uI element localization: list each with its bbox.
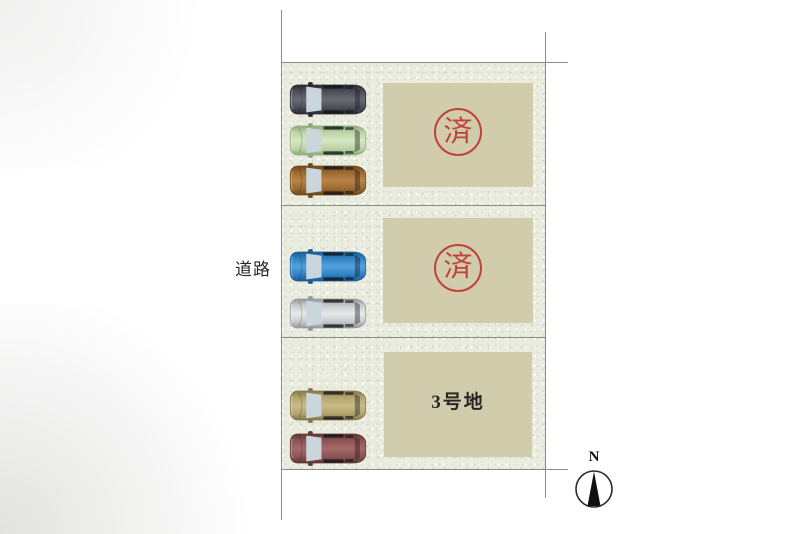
- compass-rose-icon: [572, 467, 616, 511]
- bottom-boundary-line: [282, 469, 568, 470]
- bottom-left-shade: [0, 304, 310, 534]
- lot-divider-2-line: [282, 337, 545, 338]
- dark-gray-car: [288, 81, 368, 118]
- compass: N: [566, 449, 622, 511]
- right-boundary-line: [545, 32, 546, 498]
- blue-car: [288, 248, 368, 285]
- lot-2-pad: 済: [383, 218, 533, 323]
- green-car: [288, 122, 368, 159]
- lot-1-pad: 済: [383, 83, 533, 187]
- site-plan-canvas: 道路 済済3号地: [0, 0, 801, 534]
- top-boundary-line: [282, 62, 568, 63]
- compass-north-label: N: [566, 449, 622, 465]
- brown-car: [288, 162, 368, 199]
- lot-3-label: 3号地: [431, 387, 485, 414]
- lot-2-sold-stamp: 済: [434, 244, 482, 292]
- silver-car: [288, 295, 368, 332]
- top-left-shade: [0, 0, 260, 170]
- lot-3-pad: 3号地: [384, 352, 532, 457]
- lot-1-sold-stamp: 済: [434, 108, 482, 156]
- lot-divider-1-line: [282, 205, 545, 206]
- khaki-car: [288, 387, 368, 424]
- road-label: 道路: [230, 255, 276, 280]
- maroon-car: [288, 430, 368, 467]
- left-boundary-line: [281, 10, 282, 520]
